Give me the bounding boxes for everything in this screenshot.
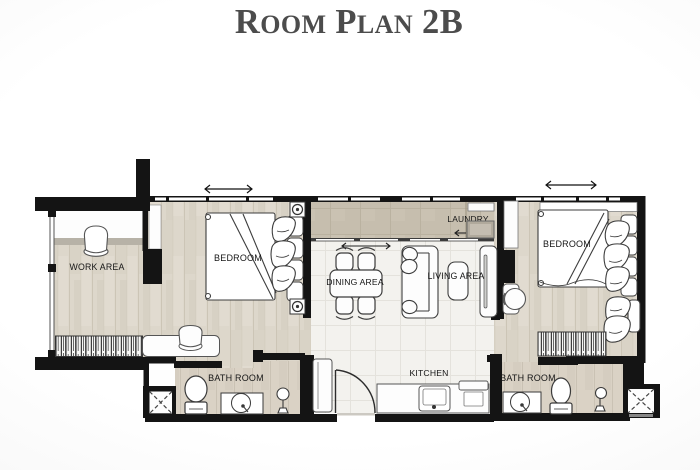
svg-text:LIVING AREA: LIVING AREA [428,271,485,281]
svg-text:KITCHEN: KITCHEN [409,368,448,378]
svg-text:BEDROOM: BEDROOM [214,253,262,263]
svg-text:BATH ROOM: BATH ROOM [500,373,556,383]
svg-text:DINING AREA: DINING AREA [326,277,384,287]
svg-text:BATH ROOM: BATH ROOM [208,373,264,383]
svg-text:ROOM PLAN 2B: ROOM PLAN 2B [235,3,463,41]
svg-text:BEDROOM: BEDROOM [543,239,591,249]
svg-text:WORK AREA: WORK AREA [69,262,124,272]
